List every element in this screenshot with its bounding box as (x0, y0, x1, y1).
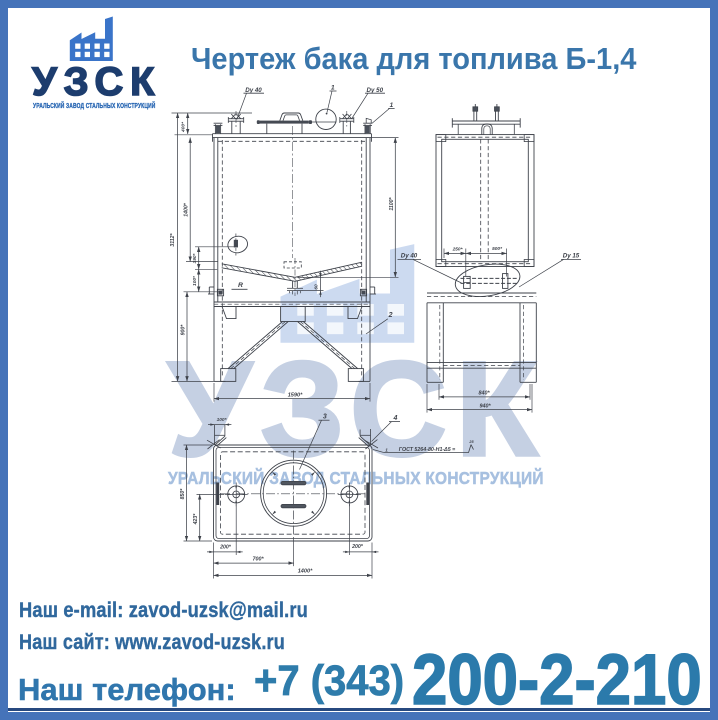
svg-text:1590*: 1590* (288, 392, 303, 398)
svg-text:250*: 250* (452, 247, 464, 253)
svg-text:Dy 50: Dy 50 (367, 87, 384, 94)
svg-text:200*: 200* (219, 545, 232, 551)
svg-text:Dy 40: Dy 40 (401, 253, 418, 260)
svg-text:ГОСТ 5264-80-Н1-Δ5 =: ГОСТ 5264-80-Н1-Δ5 = (399, 447, 455, 453)
svg-text:390*: 390* (192, 252, 198, 263)
svg-text:400*: 400* (181, 121, 187, 133)
svg-text:Dy 15: Dy 15 (563, 252, 580, 259)
svg-text:940*: 940* (479, 403, 491, 409)
svg-text:900*: 900* (181, 324, 187, 336)
svg-text:100*: 100* (192, 275, 198, 286)
svg-text:200*: 200* (351, 544, 364, 550)
svg-text:850*: 850* (180, 488, 186, 500)
svg-text:100*: 100* (217, 417, 228, 423)
svg-text:423*: 423* (193, 513, 199, 526)
svg-text:1: 1 (331, 85, 335, 92)
svg-text:1: 1 (390, 102, 394, 109)
svg-text:3112*: 3112* (170, 232, 176, 246)
svg-text:4: 4 (392, 415, 397, 422)
svg-text:700*: 700* (252, 556, 264, 562)
svg-text:840*: 840* (478, 391, 490, 397)
svg-text:60: 60 (314, 284, 320, 290)
svg-text:1: 1 (385, 448, 388, 453)
svg-text:3: 3 (323, 414, 327, 421)
svg-text:Dy 40: Dy 40 (245, 87, 262, 94)
svg-text:1400*: 1400* (184, 202, 190, 217)
svg-text:500*: 500* (492, 246, 503, 252)
svg-text:R: R (238, 282, 243, 289)
svg-text:1100*: 1100* (389, 196, 395, 210)
svg-text:1400*: 1400* (298, 569, 313, 575)
svg-text:2: 2 (388, 312, 393, 319)
svg-text:25: 25 (468, 440, 474, 444)
